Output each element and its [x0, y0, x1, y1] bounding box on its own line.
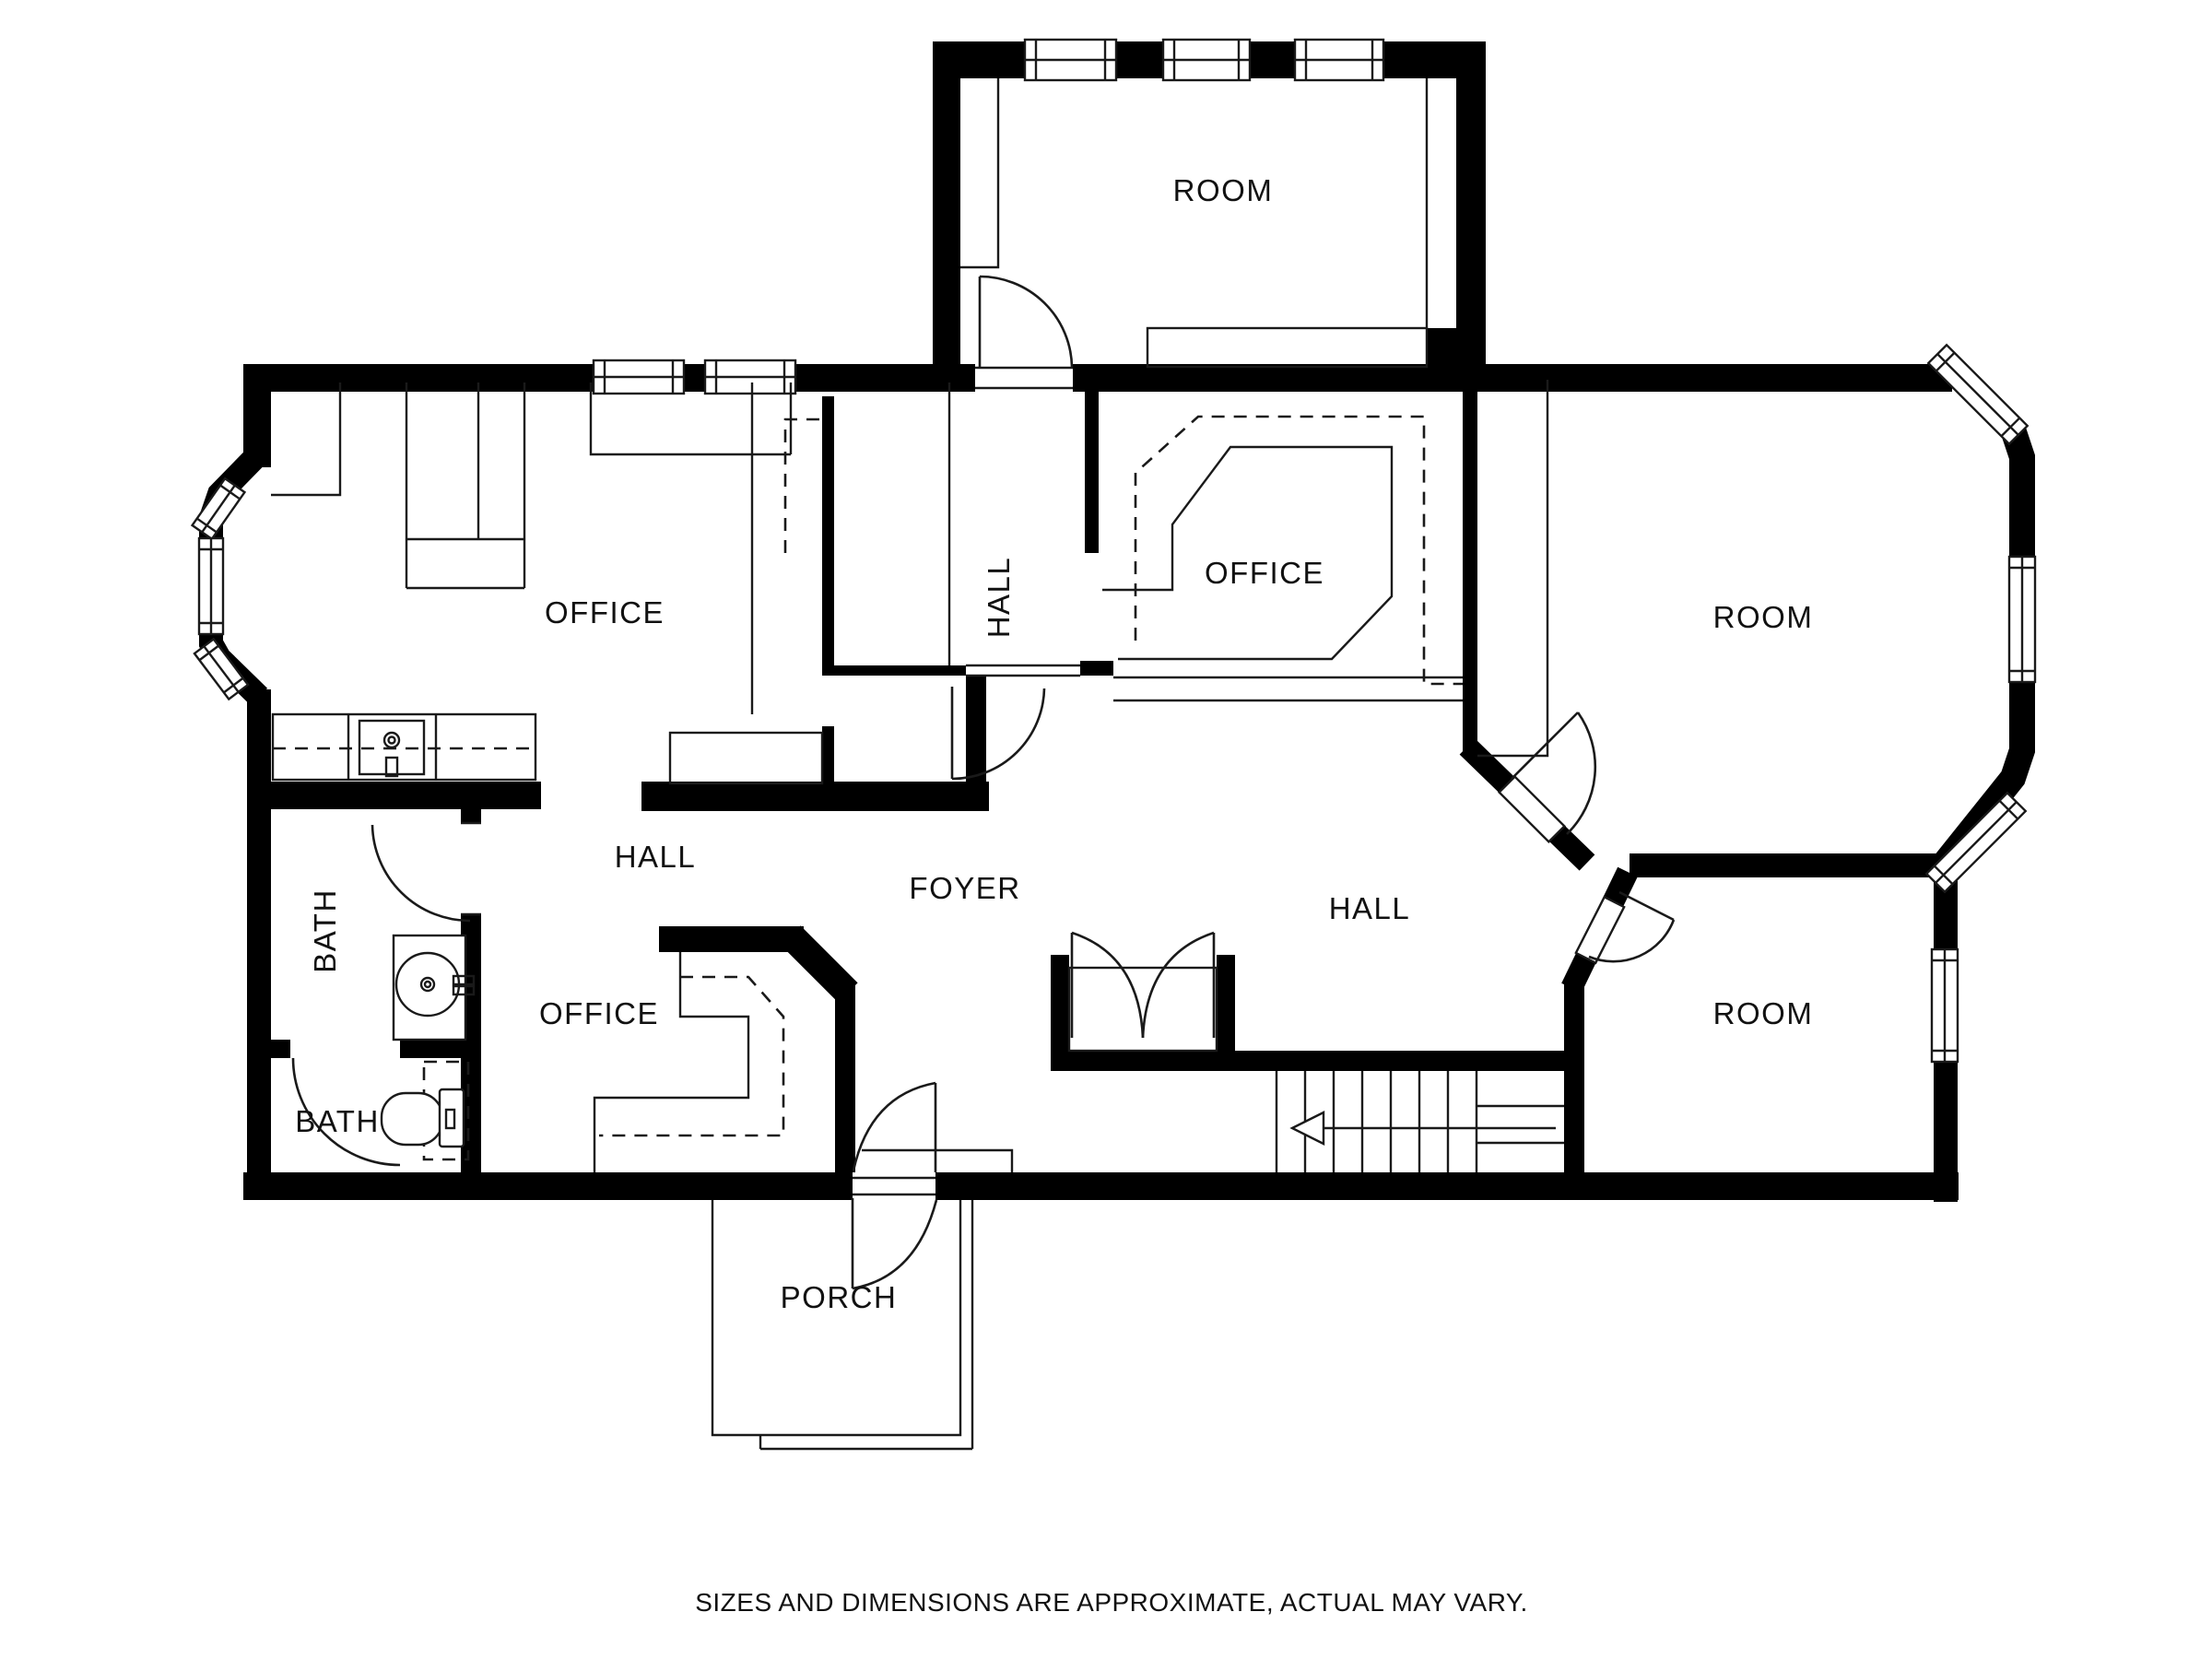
window-bay-right-e: [2009, 557, 2035, 682]
builtin-room-top: [1147, 328, 1427, 367]
window-room-top-2: [1163, 40, 1250, 80]
label-bath-upper: BATH: [308, 888, 342, 973]
stair-arrow: [1292, 1112, 1324, 1144]
window-office-left-2: [705, 360, 795, 394]
door-opening-bath-upper: [461, 823, 481, 914]
label-hall-left: HALL: [615, 840, 697, 874]
door-arc-front-in: [853, 1083, 935, 1171]
fixtures: [273, 714, 972, 1449]
window-bay-left-nw: [193, 478, 245, 539]
floor-plan: ROOM OFFICE HALL OFFICE ROOM HALL FOYER …: [0, 0, 2212, 1659]
desk-office-lower: [594, 952, 748, 1172]
closet-dashed-office-center: [1135, 417, 1463, 684]
door-arc-closet-left: [1072, 933, 1143, 1038]
label-foyer: FOYER: [909, 871, 1020, 905]
desk-office-center: [1102, 447, 1392, 659]
label-room-top: ROOM: [1173, 173, 1274, 207]
label-office-lower: OFFICE: [539, 996, 659, 1030]
window-room-top-3: [1295, 40, 1383, 80]
door-arc-room-right: [1567, 712, 1595, 834]
label-office-left: OFFICE: [545, 595, 665, 629]
stairs: [1277, 1071, 1564, 1172]
door-arc-bath-upper: [372, 825, 470, 921]
toilet: [382, 1089, 464, 1147]
window-room-top-1: [1025, 40, 1116, 80]
door-arc-room-top: [980, 276, 1072, 367]
label-porch: PORCH: [781, 1280, 898, 1314]
window-office-left-1: [594, 360, 684, 394]
label-room-right: ROOM: [1713, 600, 1814, 634]
closet-interior: [1069, 968, 1217, 1051]
porch-outline: [712, 1200, 972, 1449]
bath-vanity: [394, 935, 474, 1040]
label-hall-right: HALL: [1329, 891, 1411, 925]
sink-counter: [273, 714, 535, 780]
window-room-bottom-right: [1932, 949, 1958, 1062]
door-arc-front-out: [853, 1200, 936, 1288]
door-opening-front: [853, 1172, 935, 1200]
hall-counter: [670, 733, 822, 783]
label-office-center: OFFICE: [1205, 556, 1324, 590]
window-bay-right-ne: [1928, 345, 2027, 443]
window-bay-left-w: [199, 538, 223, 634]
caption-disclaimer: SIZES AND DIMENSIONS ARE APPROXIMATE, AC…: [695, 1588, 1528, 1617]
label-hall-corridor: HALL: [982, 557, 1016, 639]
label-bath-lower: BATH: [295, 1104, 380, 1138]
label-room-bottom-right: ROOM: [1713, 996, 1814, 1030]
door-arc-closet-right: [1143, 933, 1214, 1038]
